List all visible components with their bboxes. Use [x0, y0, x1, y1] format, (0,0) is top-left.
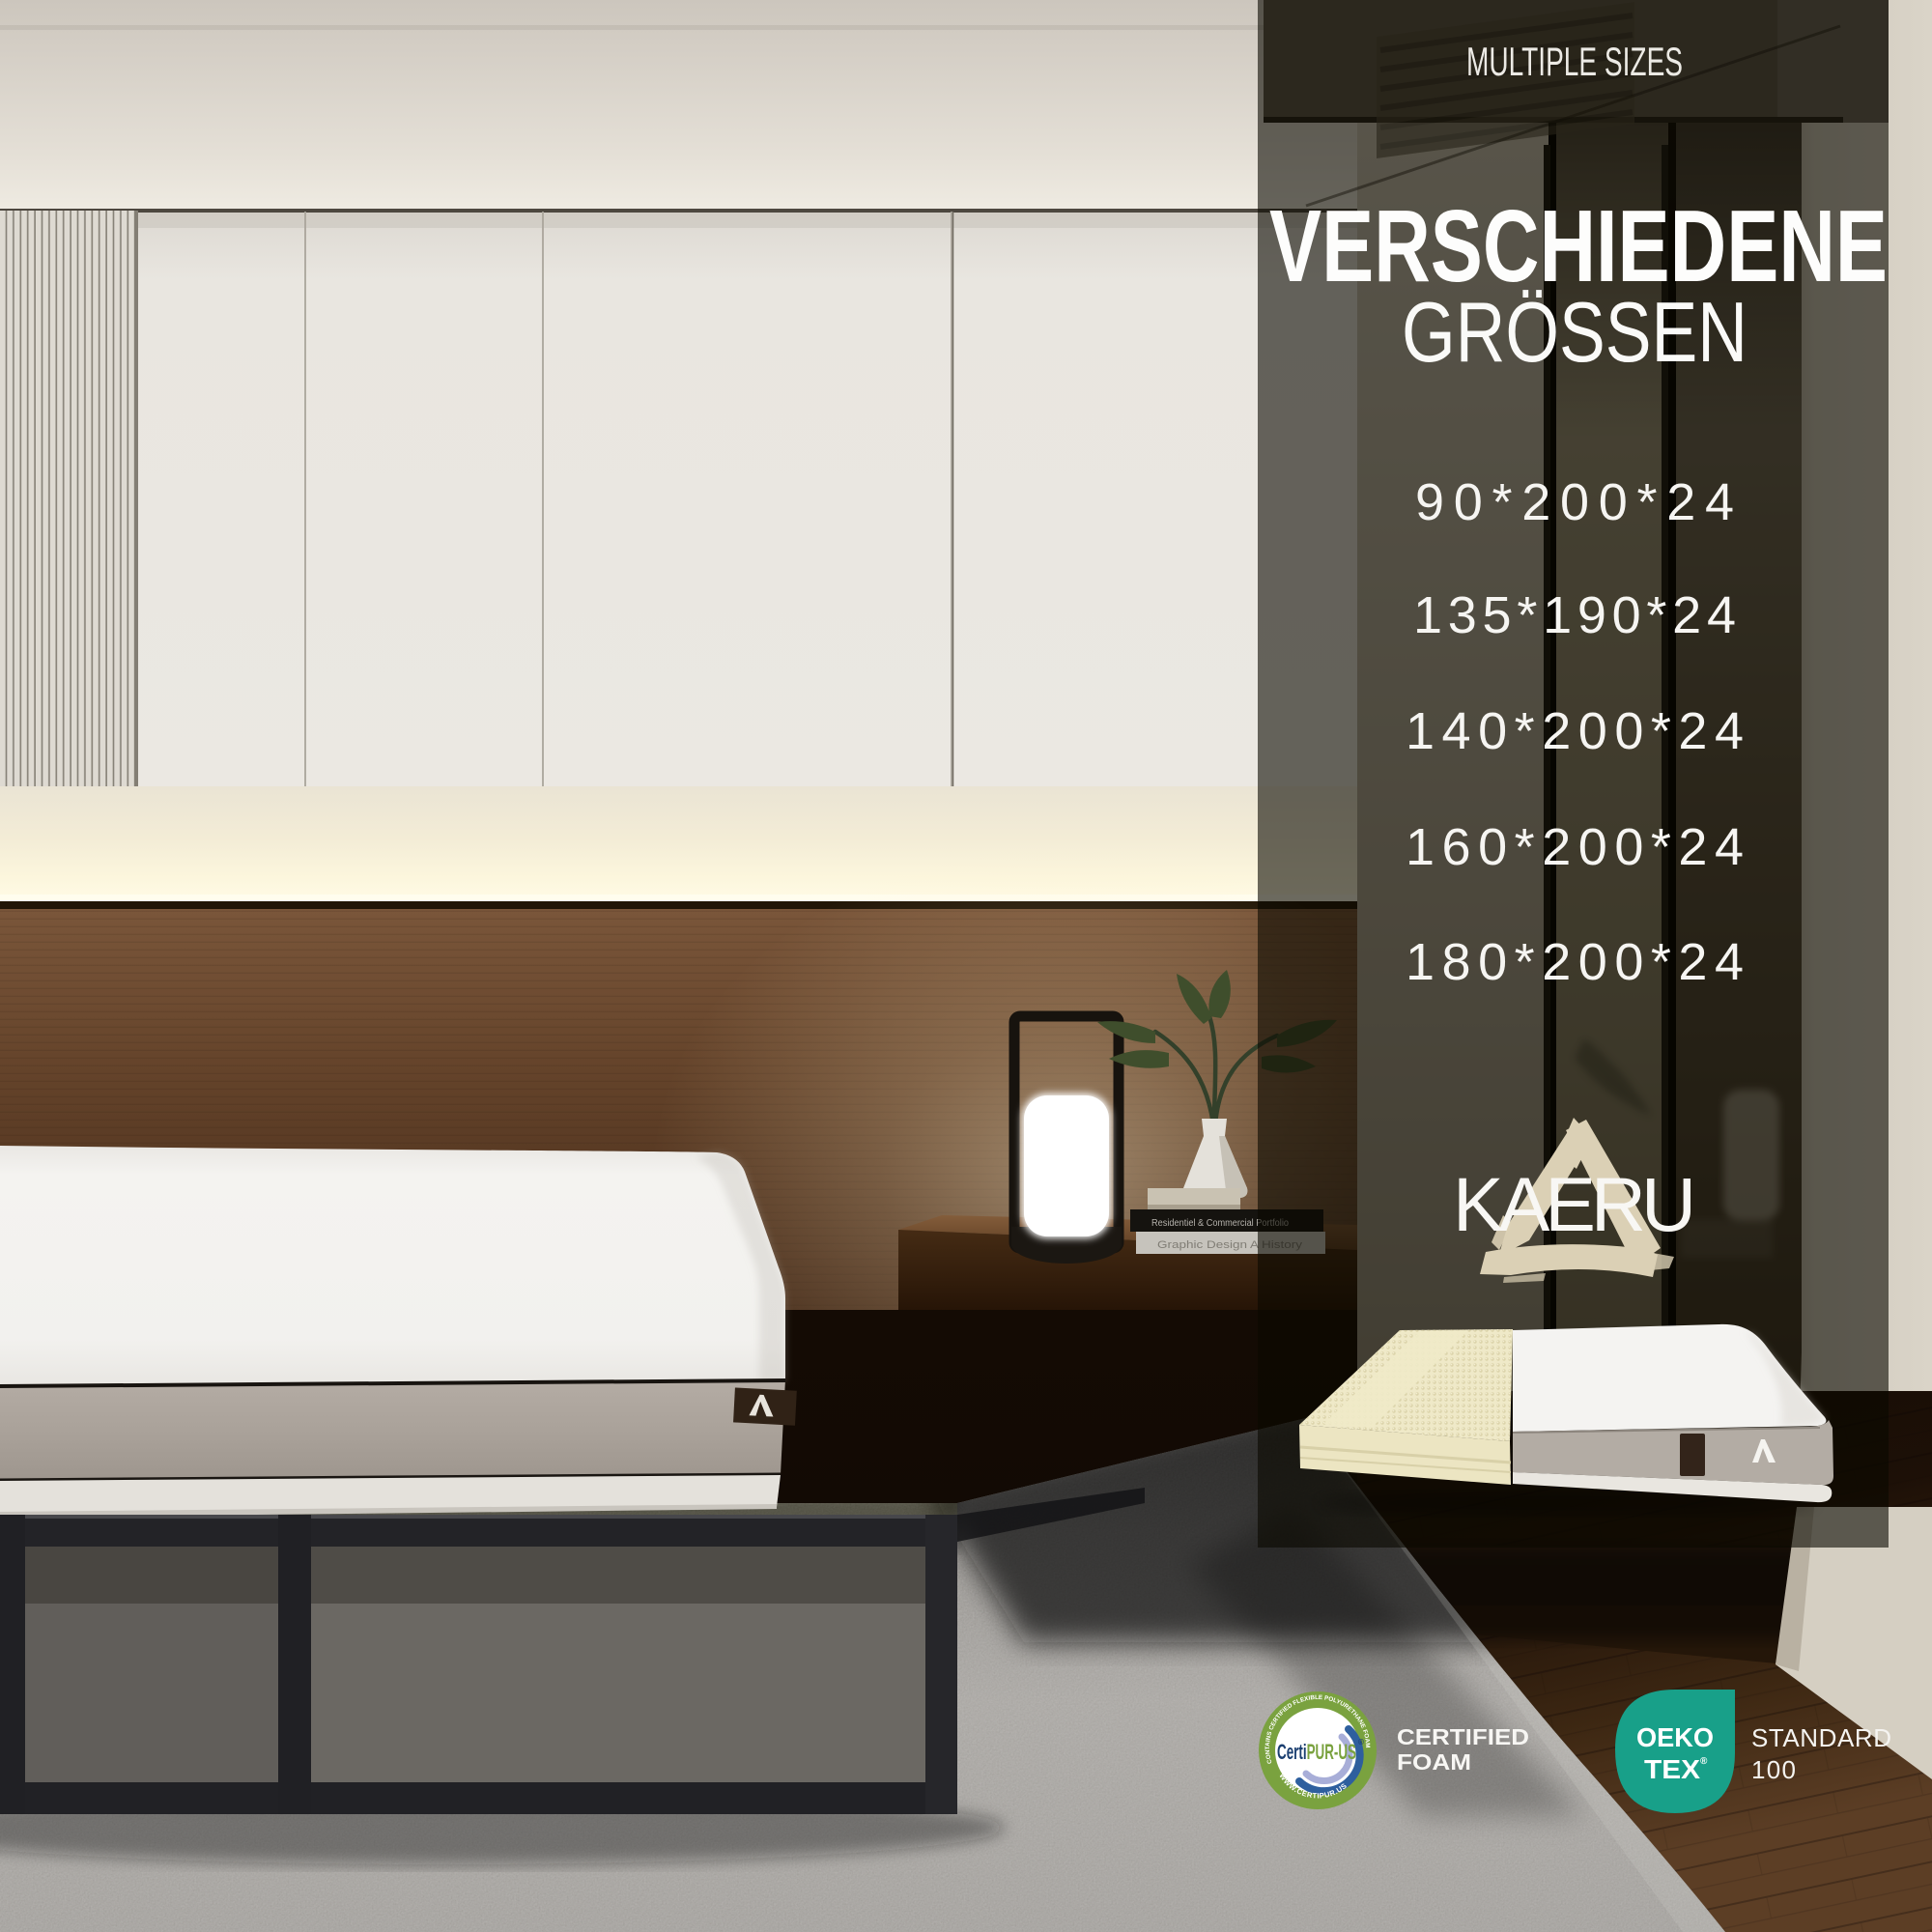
- svg-text:TEX: TEX: [1644, 1754, 1700, 1784]
- svg-text:GRÖSSEN: GRÖSSEN: [1402, 284, 1747, 380]
- svg-text:MULTIPLE SIZES: MULTIPLE SIZES: [1466, 39, 1683, 84]
- svg-text:CertiPUR-US: CertiPUR-US: [1277, 1740, 1356, 1764]
- svg-text:KAERU: KAERU: [1453, 1161, 1696, 1247]
- svg-text:OEKO: OEKO: [1636, 1722, 1714, 1752]
- svg-text:90*200*24: 90*200*24: [1415, 473, 1734, 531]
- svg-text:®: ®: [1358, 1738, 1364, 1747]
- svg-text:CERTIFIED: CERTIFIED: [1397, 1724, 1529, 1749]
- svg-text:STANDARD: STANDARD: [1751, 1723, 1891, 1752]
- svg-text:100: 100: [1751, 1755, 1796, 1784]
- svg-text:FOAM: FOAM: [1397, 1749, 1471, 1775]
- svg-text:®: ®: [1700, 1756, 1708, 1767]
